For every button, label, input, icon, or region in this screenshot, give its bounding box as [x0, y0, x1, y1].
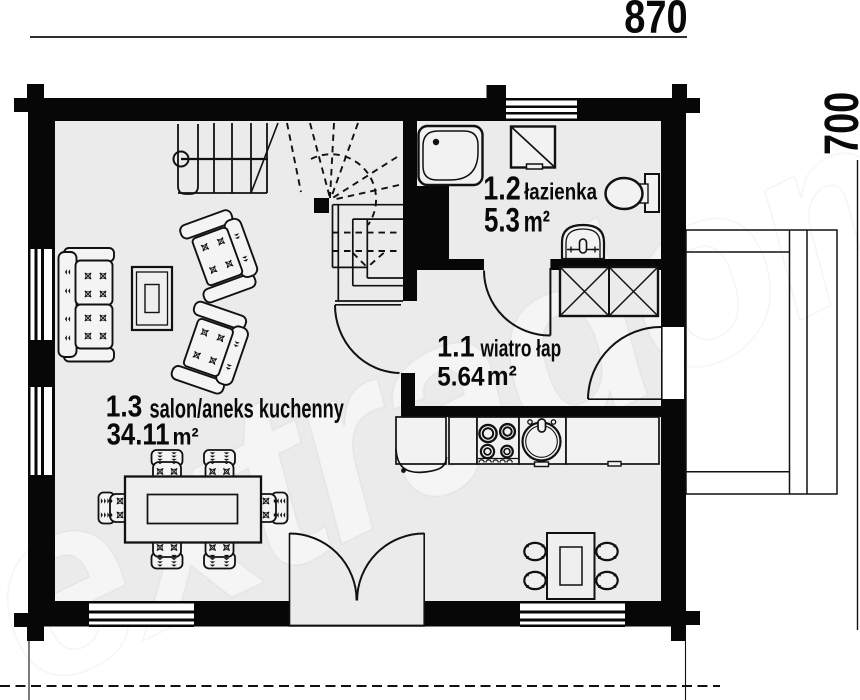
- svg-text:salon/aneks kuchenny: salon/aneks kuchenny: [150, 393, 344, 423]
- svg-text:m²: m²: [173, 424, 199, 450]
- svg-text:m²: m²: [487, 362, 517, 391]
- svg-text:1.1: 1.1: [437, 330, 475, 364]
- svg-text:870: 870: [624, 0, 687, 42]
- svg-text:5.64: 5.64: [437, 362, 485, 391]
- svg-text:700: 700: [816, 92, 860, 155]
- svg-text:m²: m²: [524, 204, 551, 238]
- svg-text:34.11: 34.11: [107, 417, 170, 452]
- svg-text:5.3: 5.3: [484, 202, 520, 239]
- svg-text:łazienka: łazienka: [524, 180, 597, 205]
- svg-text:wiatro łap: wiatro łap: [480, 336, 561, 362]
